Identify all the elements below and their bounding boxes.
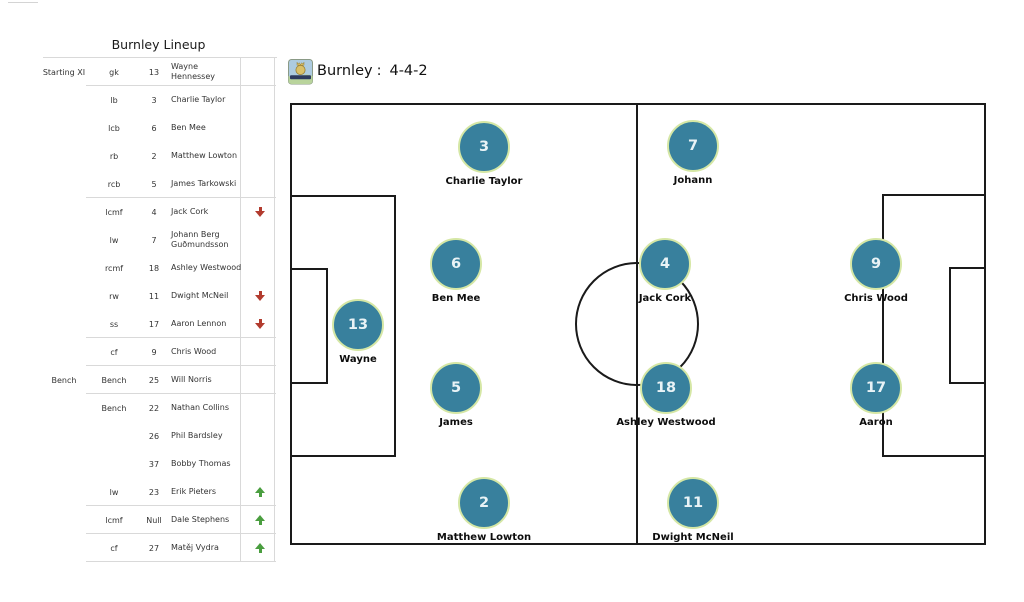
cell-name: Nathan Collins [168,403,243,413]
player-circle: 2 [458,477,510,529]
cell-position: lw [88,488,140,497]
cell-position: lb [88,96,140,105]
arrow-up-icon [255,514,266,526]
table-row: lcmf Null Dale Stephens [40,506,277,534]
cell-number: 18 [140,264,168,273]
player-number: 13 [348,317,368,333]
player-name-label: Wayne [339,354,377,365]
player-name-label: Chris Wood [844,293,908,304]
cell-group: Starting XI [40,68,88,77]
arrow-down-icon [255,290,266,302]
table-row: rw 11 Dwight McNeil [40,282,277,310]
cell-name: Jack Cork [168,207,243,217]
cell-number: 25 [140,376,168,385]
player-circle: 9 [850,238,902,290]
table-row: lw 23 Erik Pieters [40,478,277,506]
player-number: 3 [479,139,489,155]
player-name-label: Matthew Lowton [437,532,531,543]
cell-number: 26 [140,432,168,441]
top-left-tick [8,2,38,3]
cell-position: lcb [88,124,140,133]
player-circle: 6 [430,238,482,290]
cell-number: 13 [140,68,168,77]
arrow-up-icon [255,486,266,498]
player-name-label: Jack Cork [639,293,691,304]
team-name: Burnley [317,63,373,79]
player-circle: 11 [667,477,719,529]
formation-label: 4-4-2 [389,63,427,79]
table-row: lcb 6 Ben Mee [40,114,277,142]
arrow-down-icon [255,206,266,218]
cell-name: Bobby Thomas [168,459,243,469]
cell-number: 23 [140,488,168,497]
cell-name: Dale Stephens [168,515,243,525]
cell-number: Null [140,516,168,525]
table-row: rb 2 Matthew Lowton [40,142,277,170]
cell-number: 11 [140,292,168,301]
cell-name: Dwight McNeil [168,291,243,301]
player-circle: 17 [850,362,902,414]
player-circle: 13 [332,299,384,351]
player-name-label: Ben Mee [432,293,481,304]
header-separator: : [377,63,382,79]
cell-number: 3 [140,96,168,105]
table-row: lb 3 Charlie Taylor [40,86,277,114]
cell-number: 17 [140,320,168,329]
cell-name: Charlie Taylor [168,95,243,105]
cell-number: 5 [140,180,168,189]
cell-number: 6 [140,124,168,133]
table-row: cf 9 Chris Wood [40,338,277,366]
cell-number: 4 [140,208,168,217]
player-number: 6 [451,256,461,272]
table-row: Bench 22 Nathan Collins [40,394,277,422]
cell-position: cf [88,544,140,553]
cell-name: Matěj Vydra [168,543,243,553]
arrow-down-icon [255,318,266,330]
player-name-label: Charlie Taylor [446,176,523,187]
player-number: 17 [866,380,886,396]
player-circle: 3 [458,121,510,173]
player-name-label: Ashley Westwood [616,417,715,428]
player-number: 18 [656,380,676,396]
table-row: lcmf 4 Jack Cork [40,198,277,226]
cell-position: lcmf [88,516,140,525]
cell-number: 37 [140,460,168,469]
cell-number: 2 [140,152,168,161]
cell-position: rcmf [88,264,140,273]
burnley-crest-icon [288,58,313,85]
cell-status [243,290,277,302]
goal-area-right [949,267,984,384]
player-number: 11 [683,495,703,511]
cell-position: cf [88,348,140,357]
player-number: 2 [479,495,489,511]
pitch-header: Burnley : 4-4-2 [288,56,428,86]
cell-name: Matthew Lowton [168,151,243,161]
player-circle: 7 [667,120,719,172]
cell-name: Phil Bardsley [168,431,243,441]
cell-position: gk [88,68,140,77]
player-name-label: Dwight McNeil [652,532,733,543]
player-number: 9 [871,256,881,272]
player-circle: 4 [639,238,691,290]
row-divider [86,561,276,562]
cell-status [243,542,277,554]
cell-status [243,486,277,498]
lineup-table-title: Burnley Lineup [40,37,277,52]
cell-group: Bench [40,376,88,385]
pitch: 13 Wayne 3 Charlie Taylor 6 Ben Mee 5 Ja… [290,103,986,545]
player-name-label: Aaron [859,417,892,428]
cell-name: Erik Pieters [168,487,243,497]
table-row: rcmf 18 Ashley Westwood [40,254,277,282]
cell-number: 9 [140,348,168,357]
lineup-table: Starting XI gk 13 Wayne Hennessey lb 3 C… [40,58,277,562]
cell-position: rw [88,292,140,301]
goal-area-left [292,268,328,384]
table-row: cf 27 Matěj Vydra [40,534,277,562]
cell-name: Johann Berg Guðmundsson [168,230,243,250]
cell-position: rb [88,152,140,161]
cell-position: ss [88,320,140,329]
cell-position: lw [88,236,140,245]
table-row: rcb 5 James Tarkowski [40,170,277,198]
cell-name: Will Norris [168,375,243,385]
player-name-label: Johann [674,175,713,186]
player-number: 7 [688,138,698,154]
cell-name: Ben Mee [168,123,243,133]
player-number: 5 [451,380,461,396]
cell-name: Aaron Lennon [168,319,243,329]
table-row: ss 17 Aaron Lennon [40,310,277,338]
player-circle: 5 [430,362,482,414]
cell-name: Chris Wood [168,347,243,357]
table-row: lw 7 Johann Berg Guðmundsson [40,226,277,254]
player-number: 4 [660,256,670,272]
cell-name: James Tarkowski [168,179,243,189]
cell-number: 7 [140,236,168,245]
table-row: Bench Bench 25 Will Norris [40,366,277,394]
table-row: 26 Phil Bardsley [40,422,277,450]
table-row: 37 Bobby Thomas [40,450,277,478]
arrow-up-icon [255,542,266,554]
cell-number: 27 [140,544,168,553]
cell-position: rcb [88,180,140,189]
cell-status [243,514,277,526]
cell-number: 22 [140,404,168,413]
cell-status [243,206,277,218]
lineup-rows: Starting XI gk 13 Wayne Hennessey lb 3 C… [40,58,277,562]
cell-position: Bench [88,376,140,385]
cell-position: Bench [88,404,140,413]
player-circle: 18 [640,362,692,414]
player-name-label: James [439,417,473,428]
cell-name: Wayne Hennessey [168,62,243,82]
cell-status [243,318,277,330]
table-row: Starting XI gk 13 Wayne Hennessey [40,58,277,86]
cell-position: lcmf [88,208,140,217]
cell-name: Ashley Westwood [168,263,243,273]
